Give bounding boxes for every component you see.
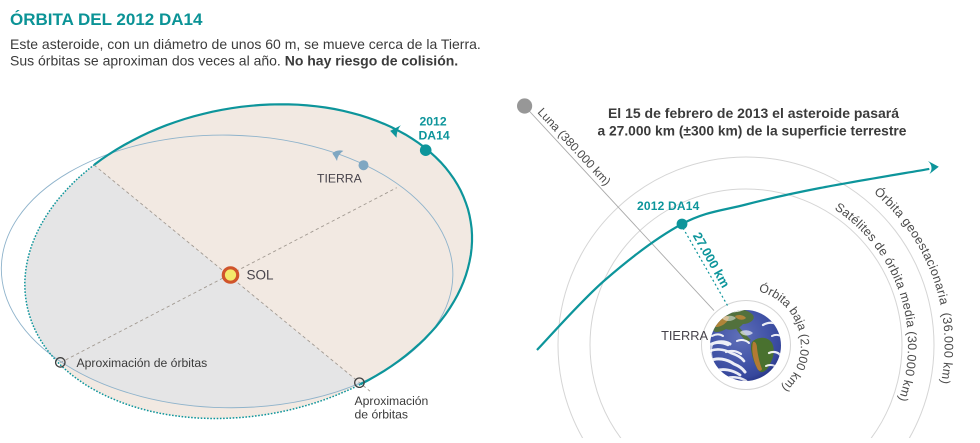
svg-text:ÓRBITA DEL 2012 DA14: ÓRBITA DEL 2012 DA14 xyxy=(10,10,203,29)
svg-text:Este asteroide, con un diámetr: Este asteroide, con un diámetro de unos … xyxy=(10,36,481,52)
svg-text:Aproximación de órbitas: Aproximación de órbitas xyxy=(77,356,208,370)
svg-text:a 27.000 km (±300 km) de la su: a 27.000 km (±300 km) de la superficie t… xyxy=(598,124,907,139)
svg-text:El 15 de febrero de 2013 el as: El 15 de febrero de 2013 el asteroide pa… xyxy=(608,105,899,121)
svg-text:2012: 2012 xyxy=(420,115,447,129)
svg-text:TIERRA: TIERRA xyxy=(661,328,708,343)
svg-text:Sus órbitas se aproximan dos v: Sus órbitas se aproximan dos veces al añ… xyxy=(10,53,458,69)
svg-text:SOL: SOL xyxy=(247,268,275,283)
svg-text:2012 DA14: 2012 DA14 xyxy=(637,199,700,213)
svg-text:Aproximación: Aproximación xyxy=(355,394,429,408)
svg-text:27.000 km: 27.000 km xyxy=(690,230,733,291)
svg-text:Luna (380.000 km): Luna (380.000 km) xyxy=(535,105,614,188)
svg-text:DA14: DA14 xyxy=(419,129,450,143)
svg-text:de órbitas: de órbitas xyxy=(355,408,409,422)
svg-text:TIERRA: TIERRA xyxy=(317,172,363,186)
